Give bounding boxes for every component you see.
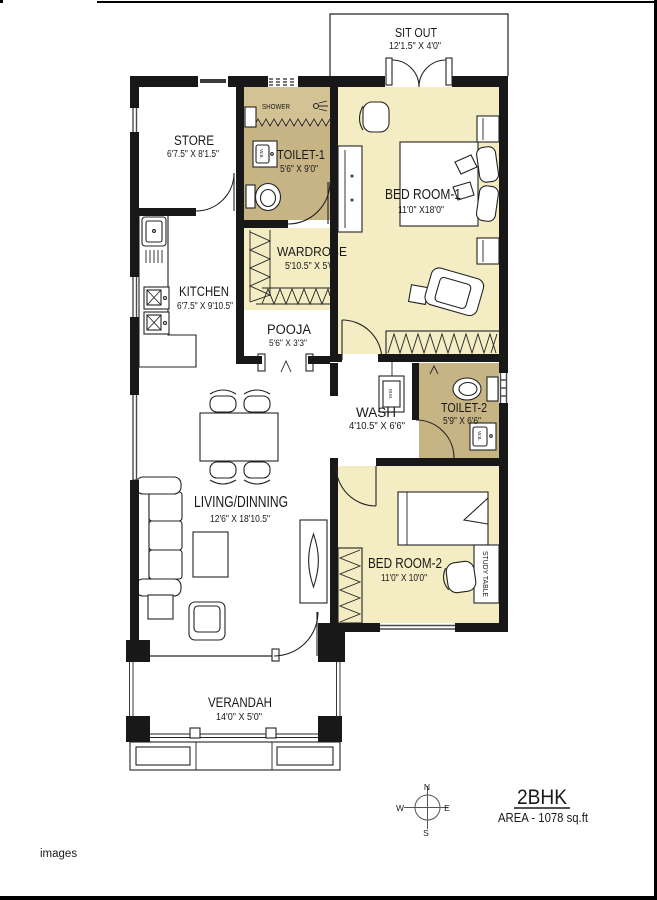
pooja-door [258, 354, 313, 372]
window-sill [477, 116, 499, 142]
kitchen-dims: 6'7.5" X 9'10.5" [177, 301, 233, 312]
sitout-dims: 12'1.5" X 4'0" [389, 41, 441, 52]
sofa [134, 477, 182, 596]
washbasin1-label: W.B. [259, 149, 264, 159]
verandah-dims: 14'0" X 5'0" [216, 712, 262, 723]
verandah-structure [130, 649, 341, 738]
toilet1-dims: 5'6" X 9'0" [280, 164, 318, 175]
store-side-window [133, 108, 137, 132]
washbasin1-icon: W.B. [253, 141, 277, 167]
bedroom1-label: BED ROOM-1 [385, 187, 461, 203]
compass-s: S [423, 828, 429, 838]
verandah-post [190, 728, 200, 738]
dining-table [200, 413, 278, 461]
floor-plan-image: W.B. [0, 0, 657, 900]
washing-machine-label: W.M. [388, 389, 393, 399]
floor-plan-svg: W.B. [0, 0, 657, 900]
toilet1-wc-icon [246, 184, 281, 211]
shower-window [269, 79, 297, 85]
shower-label: SHOWER [262, 104, 290, 111]
compass: N S W E [396, 782, 450, 838]
living-label: LIVING/DINNING [194, 494, 288, 511]
door-jamb [272, 649, 279, 661]
verandah-post [266, 728, 276, 738]
store-window [200, 79, 226, 83]
study-table-label: STUDY TABLE [481, 551, 490, 597]
bedroom2-window [380, 626, 455, 630]
washbasin2-icon: W.B. [470, 423, 496, 450]
pooja-dims: 5'6" X 3'3" [269, 338, 307, 349]
plan-area: AREA - 1078 sq.ft [498, 811, 588, 825]
compass-w: W [396, 803, 404, 813]
wash-dims: 4'10.5" X 6'6" [349, 421, 405, 432]
coffee-table [193, 532, 228, 577]
toilet1-shelf [245, 107, 256, 127]
wardrobe-dims: 5'10.5" X 5'0" [285, 261, 337, 272]
verandah-label: VERANDAH [208, 695, 272, 710]
kitchen-window [133, 277, 137, 317]
toilet1-label: TOILET-1 [277, 148, 325, 162]
toilet2-label: TOILET-2 [441, 401, 487, 415]
toilet2-dims: 5'9" X 6'6" [443, 416, 481, 427]
footer-watermark: images [40, 848, 77, 860]
side-stool [148, 595, 173, 619]
store-dims: 6'7.5" X 8'1.5" [167, 149, 219, 160]
armchair [189, 602, 225, 640]
living-window [133, 395, 137, 480]
tv-unit [300, 520, 327, 603]
store-label: STORE [174, 133, 214, 148]
dining-set [200, 390, 278, 484]
bedroom1-chair [360, 102, 390, 132]
bedroom1-dresser [338, 146, 362, 232]
compass-n: N [424, 782, 430, 792]
pooja-label: POOJA [267, 322, 311, 337]
kitchen-sink-icon [142, 217, 166, 263]
bedroom1-dims: 11'0" X18'0" [398, 204, 444, 216]
bed2 [398, 492, 488, 545]
toilet2-window [500, 373, 507, 403]
verandah-door [274, 612, 318, 656]
wardrobe-label: WARDROBE [277, 244, 347, 259]
compass-cross [404, 786, 448, 829]
sitout-label: SIT OUT [395, 25, 437, 40]
title-block: 2BHK AREA - 1078 sq.ft [498, 786, 588, 825]
toilet2-wc-icon [453, 377, 498, 401]
sitout-double-door [386, 58, 452, 87]
living-dims: 12'6" X 18'10.5" [210, 513, 270, 525]
steps [130, 742, 340, 770]
washbasin2-label: W.B. [477, 431, 482, 441]
bedroom2-label: BED ROOM-2 [368, 556, 442, 572]
wash-label: WASH [356, 405, 396, 420]
plan-title: 2BHK [517, 786, 567, 809]
bedroom2-dims: 11'0" X 10'0" [381, 573, 427, 584]
compass-e: E [444, 803, 450, 813]
kitchen-label: KITCHEN [179, 284, 229, 299]
store-door [196, 173, 234, 211]
window-sill [477, 238, 499, 264]
